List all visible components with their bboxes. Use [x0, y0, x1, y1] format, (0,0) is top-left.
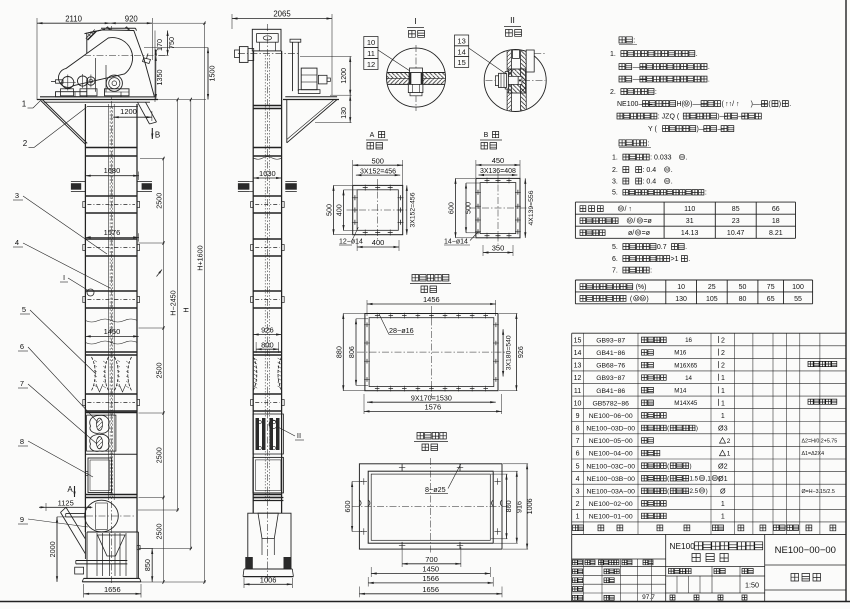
svg-text:1: 1	[727, 451, 731, 458]
svg-text:M: M	[641, 296, 645, 301]
svg-text:800: 800	[261, 340, 274, 349]
svg-text:66: 66	[772, 206, 780, 213]
svg-text:10: 10	[677, 284, 685, 291]
svg-text:2: 2	[576, 501, 580, 508]
svg-text:2500: 2500	[154, 193, 163, 209]
svg-text:8.21: 8.21	[769, 230, 783, 237]
svg-text:8: 8	[576, 426, 580, 433]
svg-text:3X180=540: 3X180=540	[505, 335, 512, 370]
svg-text:2110: 2110	[65, 14, 82, 23]
svg-text:/ ↑: / ↑	[625, 206, 632, 213]
svg-text:/: /	[633, 218, 635, 225]
svg-text:2: 2	[721, 350, 725, 357]
svg-text:14: 14	[574, 350, 582, 357]
svg-text:400: 400	[335, 204, 344, 216]
svg-text:4X139=556: 4X139=556	[528, 190, 535, 225]
svg-text:2065: 2065	[273, 10, 291, 19]
svg-text:M: M	[636, 230, 640, 235]
svg-text:: 0.4: : 0.4	[643, 167, 657, 174]
svg-text:NE100−03C−00: NE100−03C−00	[586, 463, 635, 470]
svg-text:1450: 1450	[104, 327, 121, 336]
svg-text:2: 2	[721, 363, 725, 370]
svg-text:80: 80	[739, 296, 747, 303]
svg-text:10: 10	[367, 38, 375, 47]
svg-text:M14: M14	[674, 387, 687, 394]
svg-text:1656: 1656	[422, 585, 439, 594]
svg-text:M: M	[680, 155, 684, 160]
svg-text:II: II	[297, 431, 301, 440]
svg-text:14: 14	[685, 375, 692, 382]
svg-text:Ø2: Ø2	[718, 461, 728, 470]
svg-text:1125: 1125	[58, 499, 74, 508]
svg-text:M: M	[700, 488, 704, 493]
svg-text:1.: 1.	[610, 51, 616, 58]
svg-text:8−ø25: 8−ø25	[425, 485, 446, 494]
svg-text:1: 1	[22, 100, 27, 109]
svg-text:15: 15	[457, 58, 465, 67]
svg-text:Ø: Ø	[720, 486, 726, 495]
svg-text:2: 2	[727, 438, 731, 445]
svg-text:15: 15	[574, 338, 582, 345]
svg-text:Ø1: Ø1	[718, 474, 728, 483]
svg-text:2500: 2500	[154, 524, 163, 540]
svg-text:28−ø16: 28−ø16	[389, 326, 414, 335]
svg-text:I: I	[414, 16, 416, 26]
svg-text::: :	[633, 38, 635, 45]
svg-text:880: 880	[334, 346, 343, 358]
svg-text::: :	[647, 141, 649, 148]
svg-text:14: 14	[457, 47, 465, 56]
svg-text:M: M	[638, 218, 642, 223]
svg-text:GB5782−86: GB5782−86	[592, 400, 629, 407]
svg-text:Y (: Y (	[648, 126, 657, 133]
svg-text:7: 7	[576, 438, 580, 445]
svg-text:NE100−03B−00: NE100−03B−00	[587, 476, 636, 483]
svg-text:): )	[690, 463, 692, 470]
svg-text:1: 1	[721, 400, 725, 407]
svg-text:7.: 7.	[612, 268, 618, 275]
svg-text:55: 55	[794, 296, 802, 303]
svg-text:.: .	[696, 51, 698, 58]
svg-text:: 0.033: : 0.033	[650, 155, 672, 162]
svg-text:97.7: 97.7	[642, 594, 655, 601]
svg-text:3: 3	[15, 191, 19, 200]
svg-text:M: M	[665, 179, 669, 184]
svg-text:: JZQ (: : JZQ (	[658, 114, 680, 121]
svg-text:1456: 1456	[423, 295, 440, 304]
svg-text:2500: 2500	[154, 447, 163, 463]
svg-text:=ø: =ø	[643, 218, 652, 225]
svg-text:750: 750	[167, 37, 176, 49]
svg-text:NE100−06−00: NE100−06−00	[589, 413, 633, 420]
svg-text:M: M	[685, 101, 689, 106]
svg-text:)—: )—	[697, 126, 706, 133]
svg-text:1200: 1200	[341, 68, 348, 84]
svg-text:65: 65	[767, 296, 775, 303]
svg-text:1.5: 1.5	[690, 475, 699, 482]
svg-text::: :	[655, 89, 657, 96]
svg-text:18: 18	[772, 218, 780, 225]
svg-text:926: 926	[516, 346, 525, 358]
svg-text:: 0.4: : 0.4	[643, 179, 657, 186]
svg-text:9: 9	[576, 413, 580, 420]
svg-text:): )	[706, 488, 708, 495]
svg-text:M: M	[665, 167, 669, 172]
svg-text:I: I	[63, 273, 65, 282]
svg-text:2.: 2.	[612, 167, 618, 174]
svg-text:3.: 3.	[612, 179, 618, 186]
svg-text:H(: H(	[676, 101, 684, 108]
svg-text:1006: 1006	[260, 576, 277, 585]
svg-text:105: 105	[706, 296, 718, 303]
svg-text:1576: 1576	[104, 228, 121, 237]
svg-text:.: .	[789, 101, 791, 108]
svg-text:M14X45: M14X45	[674, 400, 698, 407]
svg-text:1: 1	[721, 514, 725, 521]
svg-text:11: 11	[367, 49, 375, 58]
svg-text:4: 4	[576, 476, 580, 483]
svg-text:): )	[646, 296, 648, 303]
svg-text:13: 13	[574, 363, 582, 370]
svg-text:Ø=H−3.15/2.5: Ø=H−3.15/2.5	[802, 489, 835, 495]
svg-text:1: 1	[721, 413, 725, 420]
svg-text:M16X65: M16X65	[674, 362, 698, 369]
svg-text:23: 23	[732, 218, 740, 225]
svg-text:B: B	[155, 131, 160, 140]
svg-text:.: .	[708, 77, 710, 84]
svg-text:M: M	[700, 475, 704, 480]
svg-text:H−2450: H−2450	[168, 290, 177, 315]
svg-text:1450: 1450	[422, 565, 439, 574]
svg-text:.: .	[708, 64, 710, 71]
svg-text:Δ1=Δ2X4: Δ1=Δ2X4	[802, 451, 825, 457]
svg-text:25: 25	[708, 284, 716, 291]
svg-text:10: 10	[574, 400, 582, 407]
svg-text:6: 6	[576, 451, 580, 458]
svg-text:Δ2=H/0.2+5.75: Δ2=H/0.2+5.75	[802, 439, 838, 445]
svg-text:M: M	[628, 218, 632, 223]
svg-text:GB41−86: GB41−86	[596, 350, 625, 357]
svg-text:↑↑/ ↑: ↑↑/ ↑	[725, 101, 739, 108]
svg-text::: :	[705, 190, 707, 197]
svg-text:920: 920	[125, 14, 139, 23]
svg-text:A: A	[67, 485, 73, 494]
svg-text:0.7: 0.7	[657, 244, 667, 251]
svg-text:31: 31	[686, 218, 694, 225]
svg-text:806: 806	[347, 346, 356, 358]
svg-text:M: M	[713, 475, 717, 480]
svg-text:600: 600	[447, 202, 456, 214]
svg-text:9X170=1530: 9X170=1530	[411, 393, 452, 402]
svg-text:.: .	[686, 155, 688, 162]
svg-text:11: 11	[574, 388, 581, 395]
svg-text:GB93−87: GB93−87	[596, 338, 625, 345]
svg-text:12−ø14: 12−ø14	[339, 239, 363, 246]
svg-text:NE100——: NE100——	[617, 101, 652, 108]
svg-text:5.: 5.	[612, 190, 618, 197]
svg-text:1500: 1500	[207, 66, 216, 82]
svg-text:4: 4	[15, 238, 19, 247]
svg-text:1:50: 1:50	[745, 581, 759, 590]
svg-text:Ø3: Ø3	[718, 424, 728, 433]
svg-text:500: 500	[371, 156, 384, 165]
svg-text:10.47: 10.47	[727, 230, 745, 237]
svg-text:800: 800	[504, 500, 513, 512]
svg-text:GB41−86: GB41−86	[596, 388, 625, 395]
svg-text:(%): (%)	[636, 284, 647, 291]
svg-text:6: 6	[20, 342, 24, 351]
svg-text:3X152=456: 3X152=456	[360, 168, 396, 175]
svg-text:B: B	[484, 132, 489, 139]
svg-text:12: 12	[367, 60, 375, 69]
svg-text:.: .	[688, 256, 690, 263]
svg-text:): )	[779, 101, 781, 108]
svg-text:GB93−87: GB93−87	[596, 375, 625, 382]
svg-text:1200: 1200	[120, 107, 137, 116]
svg-text:1656: 1656	[104, 585, 121, 594]
svg-text:1680: 1680	[104, 166, 121, 175]
svg-text:NE100−04−00: NE100−04−00	[589, 451, 633, 458]
svg-text:3X152=456: 3X152=456	[409, 192, 416, 227]
svg-text:916: 916	[515, 501, 524, 513]
svg-text:75: 75	[767, 284, 775, 291]
svg-text:=ø: =ø	[642, 230, 651, 237]
svg-text:1350: 1350	[155, 70, 164, 86]
svg-text:110: 110	[684, 206, 695, 213]
svg-text:85: 85	[732, 206, 740, 213]
svg-text:1566: 1566	[422, 574, 439, 583]
svg-text:14.13: 14.13	[681, 230, 699, 237]
svg-text:1: 1	[721, 501, 725, 508]
svg-text:2.: 2.	[610, 89, 616, 96]
svg-text::: :	[650, 268, 652, 275]
svg-text:100: 100	[792, 284, 804, 291]
svg-text:II: II	[510, 15, 515, 25]
svg-text:1: 1	[721, 375, 725, 382]
svg-text:16: 16	[685, 337, 692, 344]
svg-text:1.: 1.	[612, 155, 618, 162]
svg-text:500: 500	[325, 204, 334, 216]
svg-text:400: 400	[372, 238, 385, 247]
svg-text:50: 50	[739, 284, 747, 291]
svg-text:850: 850	[143, 559, 152, 571]
svg-text:13: 13	[457, 37, 465, 46]
svg-text:2500: 2500	[154, 363, 163, 379]
svg-text:2: 2	[23, 139, 28, 148]
svg-text:12: 12	[574, 375, 582, 382]
svg-text:NE100: NE100	[670, 541, 696, 551]
svg-text:700: 700	[425, 555, 438, 564]
svg-text:)—: )—	[717, 114, 726, 121]
svg-text:NE100−05−00: NE100−05−00	[589, 438, 633, 445]
svg-text:GB68−76: GB68−76	[596, 363, 625, 370]
svg-text:1: 1	[576, 514, 580, 521]
svg-text:500: 500	[464, 202, 473, 214]
svg-text:3: 3	[576, 488, 580, 495]
svg-text:350: 350	[492, 244, 505, 253]
svg-text:NE100−00−00: NE100−00−00	[775, 545, 836, 556]
svg-text:6.: 6.	[612, 256, 618, 263]
svg-text:M: M	[619, 206, 623, 211]
svg-text:A: A	[370, 132, 375, 139]
svg-text:1006: 1006	[525, 498, 534, 514]
svg-text:14−ø14: 14−ø14	[444, 239, 468, 246]
svg-text:600: 600	[343, 501, 352, 513]
svg-text:1030: 1030	[259, 169, 276, 178]
svg-text:): )	[696, 425, 698, 432]
svg-text:M16: M16	[674, 350, 687, 357]
svg-text:,1: ,1	[706, 475, 712, 482]
svg-text:2.5: 2.5	[690, 488, 699, 495]
svg-text:M: M	[635, 296, 639, 301]
svg-text:NE100−03D−00: NE100−03D−00	[586, 426, 635, 433]
svg-text:5: 5	[22, 305, 26, 314]
svg-text:926: 926	[261, 326, 274, 335]
svg-text:8: 8	[20, 437, 24, 446]
svg-text:9: 9	[20, 515, 24, 524]
svg-text:>1: >1	[671, 256, 679, 263]
svg-text:1576: 1576	[424, 403, 441, 412]
svg-text:7: 7	[20, 379, 24, 388]
svg-text:.: .	[671, 179, 673, 186]
svg-text:170: 170	[155, 39, 164, 51]
svg-text:NE100−03A−00: NE100−03A−00	[587, 488, 636, 495]
svg-text:H: H	[182, 307, 191, 312]
svg-text:5: 5	[576, 463, 580, 470]
svg-text:NE100−02−00: NE100−02−00	[589, 501, 633, 508]
svg-text:H+1600: H+1600	[195, 245, 204, 270]
svg-text:NE100−01−00: NE100−01−00	[589, 514, 633, 521]
svg-text:2: 2	[721, 338, 725, 345]
svg-text:130: 130	[341, 107, 348, 119]
svg-text:450: 450	[492, 156, 505, 165]
svg-text:130: 130	[675, 296, 687, 303]
svg-text:.: .	[671, 167, 673, 174]
svg-text:1: 1	[721, 388, 725, 395]
svg-text:ø/: ø/	[628, 230, 634, 237]
svg-text:.: .	[685, 244, 687, 251]
svg-text:2000: 2000	[48, 541, 57, 557]
svg-text:5.: 5.	[612, 244, 618, 251]
